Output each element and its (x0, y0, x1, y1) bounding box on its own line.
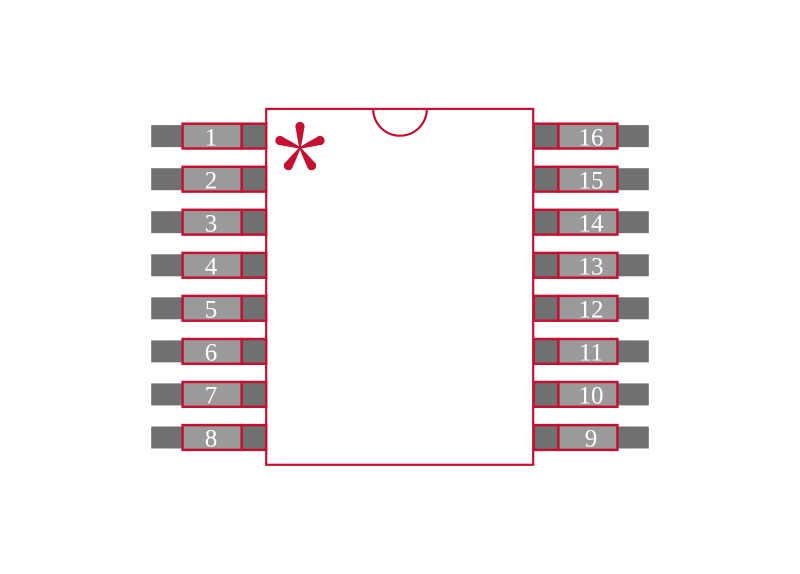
svg-text:3: 3 (205, 210, 218, 237)
svg-text:1: 1 (205, 124, 218, 151)
svg-text:7: 7 (205, 383, 218, 410)
svg-text:10: 10 (579, 383, 604, 410)
svg-text:8: 8 (205, 426, 218, 453)
svg-text:5: 5 (205, 297, 218, 324)
svg-text:6: 6 (205, 340, 218, 367)
svg-text:4: 4 (205, 254, 218, 281)
svg-text:13: 13 (579, 254, 604, 281)
svg-text:2: 2 (205, 167, 218, 194)
svg-text:11: 11 (579, 340, 603, 367)
svg-text:9: 9 (585, 426, 598, 453)
svg-text:15: 15 (579, 167, 604, 194)
svg-text:16: 16 (579, 124, 604, 151)
svg-text:12: 12 (579, 297, 604, 324)
svg-text:14: 14 (579, 210, 605, 237)
